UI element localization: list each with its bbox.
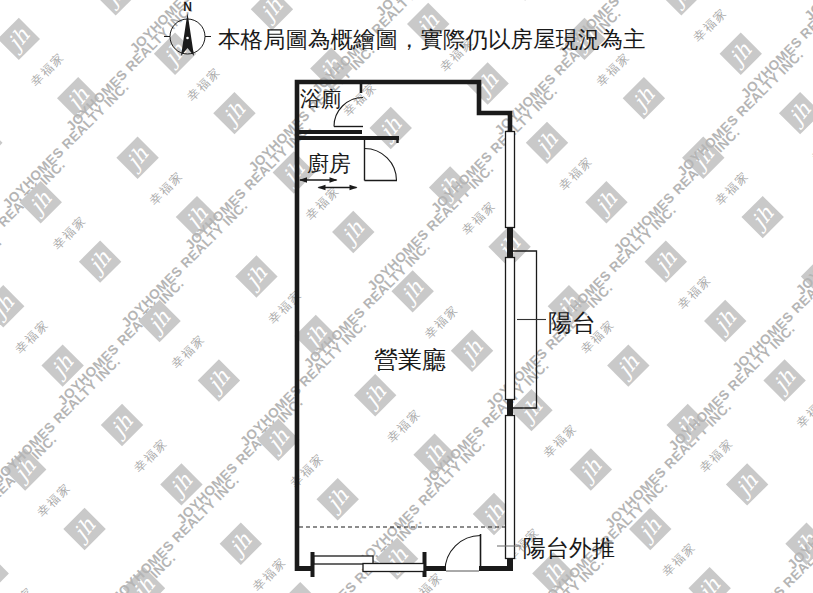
arrowhead: [299, 177, 307, 183]
floorplan-page: jh幸福家jhjh幸福家jhjh幸福家jhjh幸福家jhjh幸福家jhjh幸福家…: [0, 0, 813, 593]
hall-label: 營業廳: [374, 346, 446, 374]
arrowhead: [350, 185, 358, 191]
window-pane-upper: [314, 556, 373, 564]
kitchen-dimension-arrows: [299, 177, 358, 190]
window-right-bottom: [506, 416, 515, 559]
balcony-label: 陽台: [548, 309, 596, 337]
bottom-sliding-window: [314, 556, 424, 572]
entry-door-arc: [445, 536, 481, 572]
arrowhead: [330, 177, 338, 183]
floorplan-drawing: N 本格局圖為概繪圖，實際仍以房屋現況為主: [0, 0, 813, 593]
kitchen-label: 廚房: [307, 151, 351, 176]
disclaimer-text: 本格局圖為概繪圖，實際仍以房屋現況為主: [218, 26, 646, 52]
north-compass: N: [164, 0, 211, 56]
window-right-top: [506, 132, 515, 228]
window-pane-lower: [363, 564, 424, 572]
bathroom-label: 浴廁: [300, 87, 342, 111]
balcony-extension-label: 陽台外推: [523, 535, 615, 561]
doors: [334, 98, 481, 572]
window-balcony: [506, 258, 515, 400]
right-windows: [506, 132, 515, 559]
kitchen-door-arc: [365, 149, 397, 181]
compass-pivot: [186, 37, 189, 40]
north-label: N: [183, 0, 192, 14]
arrowhead: [318, 185, 326, 191]
